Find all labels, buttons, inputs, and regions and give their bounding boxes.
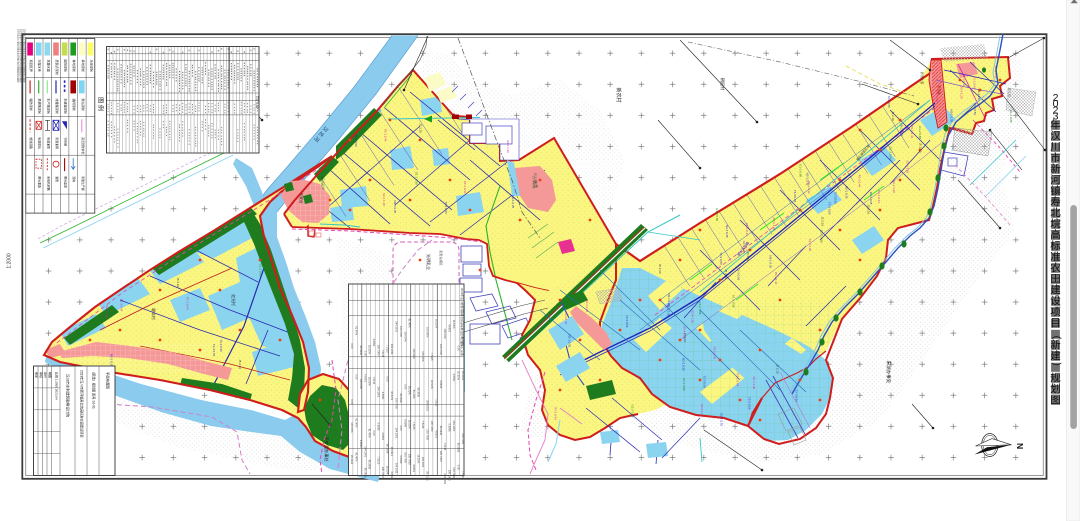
svg-text:审核: 审核 — [39, 372, 44, 378]
svg-text:生产路现状: 生产路现状 — [46, 98, 51, 113]
svg-text:1:2000: 1:2000 — [7, 253, 13, 269]
svg-text:81.40%: 81.40% — [354, 453, 358, 462]
svg-text:16.52%: 16.52% — [452, 320, 456, 329]
svg-text:89.3936: 89.3936 — [386, 444, 390, 454]
svg-text:J5 2.10: J5 2.10 — [176, 278, 180, 288]
svg-text:100.00%: 100.00% — [421, 457, 425, 468]
svg-text:0.00: 0.00 — [399, 426, 403, 432]
svg-text:P1-1 0.44: P1-1 0.44 — [383, 129, 387, 142]
svg-text:89.3936: 89.3936 — [439, 426, 443, 436]
svg-text:81.40%: 81.40% — [368, 429, 372, 438]
svg-text:整治堰塘: 整治堰塘 — [38, 176, 43, 188]
svg-text:89.3936: 89.3936 — [399, 393, 403, 403]
svg-text:流向: 流向 — [72, 176, 77, 182]
svg-text:涵闸现状: 涵闸现状 — [72, 98, 77, 110]
svg-text:S2-4 1.20: S2-4 1.20 — [905, 161, 909, 174]
svg-text:S2-4 1.20: S2-4 1.20 — [585, 300, 589, 313]
svg-text:旱地现状: 旱地现状 — [81, 60, 86, 72]
svg-text:S2-4 1.20: S2-4 1.20 — [960, 86, 964, 99]
svg-text:81.40%: 81.40% — [412, 390, 416, 399]
svg-text:100.7000: 100.7000 — [426, 429, 430, 440]
svg-text:汉川市水利建筑勘察设计院: 汉川市水利建筑勘察设计院 — [66, 374, 71, 418]
svg-text:P1-1 0.44: P1-1 0.44 — [712, 347, 716, 360]
svg-text:G1-2 0.88: G1-2 0.88 — [918, 126, 922, 139]
svg-text:100.7000: 100.7000 — [403, 452, 407, 463]
svg-text:（: （ — [1050, 329, 1062, 340]
svg-text:S2-4 1.20: S2-4 1.20 — [808, 239, 812, 252]
svg-text:N3-1 0.35: N3-1 0.35 — [720, 413, 724, 426]
svg-text:P1-1 0.44: P1-1 0.44 — [736, 374, 740, 387]
svg-text:N3-1 0.35: N3-1 0.35 — [567, 335, 571, 348]
svg-text:0.6596: 0.6596 — [448, 424, 452, 432]
svg-text:S2-4 1.20: S2-4 1.20 — [772, 218, 776, 231]
svg-text:0.00: 0.00 — [457, 346, 461, 352]
svg-text:16.52%: 16.52% — [417, 454, 421, 463]
svg-text:新建泵站: 新建泵站 — [38, 137, 43, 149]
svg-text:7.5115: 7.5115 — [381, 350, 385, 358]
svg-text:4.6591: 4.6591 — [452, 374, 456, 382]
svg-text:294.1001: 294.1001 — [394, 428, 398, 439]
svg-text:审定: 审定 — [35, 372, 40, 378]
svg-text:合计汇总: 合计汇总 — [256, 96, 261, 110]
svg-text:高压线防护栏: 高压线防护栏 — [81, 137, 86, 154]
svg-text:S2-4 1.20: S2-4 1.20 — [892, 180, 896, 193]
svg-text:配套设施区: 配套设施区 — [439, 250, 444, 265]
svg-text:T2-3 0.56: T2-3 0.56 — [354, 134, 358, 147]
svg-text:红光村: 红光村 — [231, 294, 236, 306]
svg-text:N3-1 0.35: N3-1 0.35 — [393, 200, 397, 213]
svg-text:新农村: 新农村 — [615, 87, 622, 102]
svg-text:100.7000: 100.7000 — [381, 467, 385, 478]
svg-text:图 例: 图 例 — [97, 97, 105, 111]
svg-text:T2-3 0.56: T2-3 0.56 — [828, 202, 832, 215]
svg-text:J5 2.10: J5 2.10 — [891, 111, 895, 121]
svg-text:G1-2 0.88: G1-2 0.88 — [631, 404, 635, 417]
svg-text:J5 2.10: J5 2.10 — [867, 205, 871, 215]
svg-text:100.00%: 100.00% — [412, 348, 416, 359]
svg-text:P1-1 0.44: P1-1 0.44 — [877, 190, 881, 203]
svg-text:N3-1 0.35: N3-1 0.35 — [869, 192, 873, 205]
svg-text:7.5115: 7.5115 — [386, 345, 390, 353]
svg-text:S2-4 1.20: S2-4 1.20 — [742, 241, 746, 254]
svg-text:T2-3 0.56: T2-3 0.56 — [887, 95, 891, 108]
svg-text:89.3936: 89.3936 — [457, 443, 461, 453]
svg-text:联丰村: 联丰村 — [151, 308, 156, 320]
svg-text:T2-3 0.56: T2-3 0.56 — [747, 397, 751, 410]
svg-text:4.6591: 4.6591 — [381, 432, 385, 440]
svg-text:0.00: 0.00 — [350, 343, 354, 349]
svg-text:294.1001: 294.1001 — [452, 420, 456, 431]
svg-text:100.7000: 100.7000 — [439, 344, 443, 355]
svg-text:S2-4 1.20: S2-4 1.20 — [752, 377, 756, 390]
svg-text:294.1001: 294.1001 — [426, 400, 430, 411]
svg-text:100.7000: 100.7000 — [430, 421, 434, 432]
svg-text:16.52%: 16.52% — [408, 386, 412, 395]
svg-text:294.1001: 294.1001 — [363, 446, 367, 457]
svg-text:16.52%: 16.52% — [368, 377, 372, 386]
svg-text:N3-1 0.35: N3-1 0.35 — [511, 195, 515, 208]
svg-text:S2-4 1.20: S2-4 1.20 — [691, 310, 695, 323]
svg-text:89.3936: 89.3936 — [363, 468, 367, 478]
svg-text:节制闸: 节制闸 — [64, 137, 69, 146]
svg-text:园地现状: 园地现状 — [64, 60, 69, 72]
svg-text:光明乳业: 光明乳业 — [426, 254, 432, 270]
svg-text:P1-1 0.44: P1-1 0.44 — [463, 181, 467, 194]
svg-text:0.00: 0.00 — [457, 465, 461, 471]
svg-text:末级渠现状: 末级渠现状 — [64, 98, 69, 113]
svg-text:P1-1 0.44: P1-1 0.44 — [186, 297, 190, 310]
svg-text:堤防现状: 堤防现状 — [29, 98, 34, 110]
svg-text:N3-1 0.35: N3-1 0.35 — [769, 255, 773, 268]
svg-text:N3-1 0.35: N3-1 0.35 — [667, 293, 671, 306]
svg-text:29.3113: 29.3113 — [350, 455, 354, 465]
svg-text:29.3113: 29.3113 — [461, 371, 465, 381]
svg-text:G1-2 0.88: G1-2 0.88 — [414, 172, 418, 185]
svg-text:N3-1 0.35: N3-1 0.35 — [949, 109, 953, 122]
svg-text:T2-3 0.56: T2-3 0.56 — [736, 268, 740, 281]
svg-text:16.52%: 16.52% — [434, 319, 438, 328]
svg-text:100.00%: 100.00% — [403, 331, 407, 342]
svg-text:图: 图 — [1050, 394, 1061, 406]
svg-text:P1-1 0.44: P1-1 0.44 — [774, 272, 778, 285]
svg-text:目: 目 — [1050, 317, 1061, 329]
svg-text:林地现状: 林地现状 — [72, 60, 77, 72]
svg-text:G1-2 0.88: G1-2 0.88 — [258, 264, 262, 277]
svg-text:新修机耕路: 新修机耕路 — [46, 176, 51, 191]
svg-text:T2-3 0.56: T2-3 0.56 — [219, 339, 223, 352]
svg-text:T2-3 0.56: T2-3 0.56 — [795, 390, 799, 403]
svg-text:排灌渠现状: 排灌渠现状 — [55, 98, 60, 113]
svg-text:P1-1 0.44: P1-1 0.44 — [973, 76, 977, 89]
svg-text:7.5115: 7.5115 — [412, 422, 416, 430]
svg-text:居民点现状: 居民点现状 — [55, 60, 60, 75]
svg-text:4.6591: 4.6591 — [412, 464, 416, 472]
svg-text:涵管: 涵管 — [55, 176, 60, 182]
svg-text:整治渠道: 整治渠道 — [64, 176, 69, 188]
svg-text:T2-3 0.56: T2-3 0.56 — [834, 192, 838, 205]
svg-text:0.00: 0.00 — [372, 430, 376, 436]
svg-text:89.3936: 89.3936 — [359, 346, 363, 356]
svg-text:0.6596: 0.6596 — [399, 456, 403, 464]
svg-text:S2-4 1.20: S2-4 1.20 — [506, 140, 510, 153]
svg-text:N3-1 0.35: N3-1 0.35 — [845, 186, 849, 199]
svg-text:J5 2.10: J5 2.10 — [776, 364, 780, 374]
svg-text:29.3113: 29.3113 — [390, 447, 394, 457]
svg-text:机耕路现状: 机耕路现状 — [38, 98, 43, 113]
svg-text:0.00: 0.00 — [354, 374, 358, 380]
svg-text:100.00%: 100.00% — [443, 329, 447, 340]
svg-text:G1-2 0.88: G1-2 0.88 — [1009, 110, 1013, 123]
svg-text:平面布置图: 平面布置图 — [106, 372, 111, 390]
svg-text:7.5115: 7.5115 — [461, 471, 465, 479]
svg-text:100.7000: 100.7000 — [439, 451, 443, 462]
svg-text:100.7000: 100.7000 — [377, 345, 381, 356]
svg-text:T2-3 0.56: T2-3 0.56 — [625, 315, 629, 328]
svg-text:P1-1 0.44: P1-1 0.44 — [564, 312, 568, 325]
svg-text:7.5115: 7.5115 — [372, 377, 376, 385]
svg-text:0.00: 0.00 — [363, 351, 367, 357]
svg-text:新河大道: 新河大道 — [920, 72, 925, 84]
svg-text:0.6596: 0.6596 — [377, 423, 381, 431]
svg-text:J5 2.10: J5 2.10 — [238, 359, 242, 369]
svg-text:16.52%: 16.52% — [368, 345, 372, 354]
svg-text:7.5115: 7.5115 — [434, 398, 438, 406]
svg-text:S2-4 1.20: S2-4 1.20 — [700, 404, 704, 417]
svg-text:100.7000: 100.7000 — [448, 470, 452, 481]
svg-text:294.1001: 294.1001 — [390, 344, 394, 355]
svg-text:朱湖办事处: 朱湖办事处 — [885, 361, 892, 384]
svg-text:新建涵管: 新建涵管 — [46, 137, 51, 149]
svg-text:J5 2.10: J5 2.10 — [919, 143, 923, 153]
svg-text:沟渠水系: 沟渠水系 — [38, 60, 43, 72]
svg-text:294.1001: 294.1001 — [394, 463, 398, 474]
svg-text:16.52%: 16.52% — [390, 391, 394, 400]
svg-text:7.5115: 7.5115 — [377, 456, 381, 464]
svg-text:T2-3 0.56: T2-3 0.56 — [793, 190, 797, 203]
svg-text:T2-3 0.56: T2-3 0.56 — [212, 344, 216, 357]
svg-text:T2-3 0.56: T2-3 0.56 — [719, 252, 723, 265]
svg-text:29.3113: 29.3113 — [426, 471, 430, 481]
svg-text:0.00: 0.00 — [350, 399, 354, 405]
svg-text:S2-4 1.20: S2-4 1.20 — [382, 193, 386, 206]
svg-text:100.00%: 100.00% — [426, 327, 430, 338]
svg-text:7.5115: 7.5115 — [430, 353, 434, 361]
svg-text:制图: 制图 — [48, 372, 53, 378]
svg-text:项目区界: 项目区界 — [29, 60, 33, 72]
svg-text:4.6591: 4.6591 — [372, 339, 376, 347]
svg-text:4.6591: 4.6591 — [359, 440, 363, 448]
svg-text:平安渡办事处: 平安渡办事处 — [323, 436, 330, 462]
svg-text:J5 2.10: J5 2.10 — [821, 217, 825, 227]
svg-text:7.5115: 7.5115 — [443, 443, 447, 451]
svg-text:100.7000: 100.7000 — [408, 454, 412, 465]
svg-text:N3-1 0.35: N3-1 0.35 — [110, 354, 114, 367]
svg-text:100.00%: 100.00% — [421, 351, 425, 362]
svg-text:）: ） — [1050, 362, 1062, 373]
svg-text:4.6591: 4.6591 — [390, 471, 394, 479]
svg-text:T2-3 0.56: T2-3 0.56 — [973, 103, 977, 116]
svg-text:J5 2.10: J5 2.10 — [724, 269, 728, 279]
svg-text:N3-1 0.35: N3-1 0.35 — [900, 123, 904, 136]
svg-text:16.52%: 16.52% — [386, 465, 390, 474]
svg-text:T2-3 0.56: T2-3 0.56 — [702, 376, 706, 389]
svg-text:0.6596: 0.6596 — [439, 380, 443, 388]
svg-text:G1-2 0.88: G1-2 0.88 — [698, 301, 702, 314]
svg-text:4.6591: 4.6591 — [434, 430, 438, 438]
svg-text:N3-1 0.35: N3-1 0.35 — [805, 173, 809, 186]
svg-text:7.5115: 7.5115 — [421, 421, 425, 429]
svg-text:N3-1 0.35: N3-1 0.35 — [682, 358, 686, 371]
svg-text:水田现状: 水田现状 — [89, 60, 94, 72]
svg-text:建: 建 — [1050, 349, 1061, 362]
svg-text:坑塘水面: 坑塘水面 — [46, 60, 51, 72]
svg-text:0.00: 0.00 — [386, 377, 390, 383]
svg-text:G1-2 0.88: G1-2 0.88 — [715, 208, 719, 221]
svg-text:S2-4 1.20: S2-4 1.20 — [683, 326, 687, 339]
svg-text:P1-1 0.44: P1-1 0.44 — [745, 223, 749, 236]
svg-text:G1-2 0.88: G1-2 0.88 — [888, 147, 892, 160]
svg-text:0.00: 0.00 — [403, 384, 407, 390]
svg-text:T2-3 0.56: T2-3 0.56 — [444, 201, 448, 214]
svg-text:P1-1 0.44: P1-1 0.44 — [553, 407, 557, 420]
svg-text:100.00%: 100.00% — [359, 379, 363, 390]
svg-text:P1-1 0.44: P1-1 0.44 — [119, 299, 123, 312]
svg-text:G1-2 0.88: G1-2 0.88 — [799, 164, 803, 177]
svg-text:294.1001: 294.1001 — [377, 386, 381, 397]
svg-text:81.40%: 81.40% — [354, 326, 358, 335]
svg-text:J5 2.10: J5 2.10 — [658, 264, 662, 274]
svg-text:（新建）规划图 图号 SJ-01: （新建）规划图 图号 SJ-01 — [92, 370, 97, 409]
svg-text:P1-1 0.44: P1-1 0.44 — [910, 126, 914, 139]
svg-text:N: N — [1015, 443, 1025, 449]
svg-text:100.7000: 100.7000 — [399, 326, 403, 337]
svg-text:P1-1 0.44: P1-1 0.44 — [858, 175, 862, 188]
svg-text:朝阳村: 朝阳村 — [719, 78, 726, 91]
svg-text:比例 1:2000 2023.04: 比例 1:2000 2023.04 — [55, 372, 60, 400]
svg-text:81.40%: 81.40% — [408, 319, 412, 328]
svg-text:4.6591: 4.6591 — [363, 374, 367, 382]
svg-text:新建涵闸: 新建涵闸 — [55, 137, 60, 149]
svg-text:J5 2.10: J5 2.10 — [419, 123, 423, 133]
svg-text:G1-2 0.88: G1-2 0.88 — [682, 378, 686, 391]
svg-text:100.00%: 100.00% — [350, 422, 354, 433]
svg-text:设计: 设计 — [44, 372, 49, 378]
svg-text:S2-4 1.20: S2-4 1.20 — [936, 90, 940, 103]
svg-text:J5 2.10: J5 2.10 — [1007, 87, 1011, 97]
svg-text:G1-2 0.88: G1-2 0.88 — [732, 295, 736, 308]
svg-text:J5 2.10: J5 2.10 — [533, 173, 537, 183]
svg-text:81.40%: 81.40% — [354, 419, 358, 428]
svg-text:S2-4 1.20: S2-4 1.20 — [105, 306, 109, 319]
svg-text:16.52%: 16.52% — [408, 420, 412, 429]
svg-text:G1-2 0.88: G1-2 0.88 — [820, 230, 824, 243]
svg-text:294.1001: 294.1001 — [394, 321, 398, 332]
svg-text:4.6591: 4.6591 — [448, 324, 452, 332]
svg-text:新建生产桥: 新建生产桥 — [81, 176, 86, 191]
svg-text:2023年汉川市新河镇寿北垸高标准农田建设项目: 2023年汉川市新河镇寿北垸高标准农田建设项目 — [80, 370, 85, 438]
svg-text:89.3936: 89.3936 — [368, 460, 372, 470]
svg-text:4.6591: 4.6591 — [381, 392, 385, 400]
svg-text:泵站现状: 泵站现状 — [81, 98, 86, 110]
svg-text:J5 2.10: J5 2.10 — [746, 252, 750, 262]
svg-text:89.3936: 89.3936 — [417, 388, 421, 398]
svg-text:规划道路: 规划道路 — [29, 137, 34, 149]
svg-text:N3-1 0.35: N3-1 0.35 — [725, 225, 729, 238]
svg-text:100.7000: 100.7000 — [452, 467, 456, 478]
svg-text:S2-1 0.52: S2-1 0.52 — [962, 74, 966, 87]
svg-text:100.7000: 100.7000 — [461, 433, 465, 444]
svg-text:G1-2 0.88: G1-2 0.88 — [287, 310, 291, 323]
svg-text:J5 2.10: J5 2.10 — [320, 176, 324, 186]
svg-text:16.52%: 16.52% — [430, 380, 434, 389]
svg-text:16.52%: 16.52% — [457, 371, 461, 380]
svg-text:100.7000: 100.7000 — [394, 398, 398, 409]
svg-text:0.6596: 0.6596 — [403, 419, 407, 427]
svg-text:294.1001: 294.1001 — [443, 473, 447, 484]
svg-text:2023年汉川市新河镇寿北垸高标准农田项目面积汇总表: 2023年汉川市新河镇寿北垸高标准农田项目面积汇总表 — [460, 288, 464, 356]
